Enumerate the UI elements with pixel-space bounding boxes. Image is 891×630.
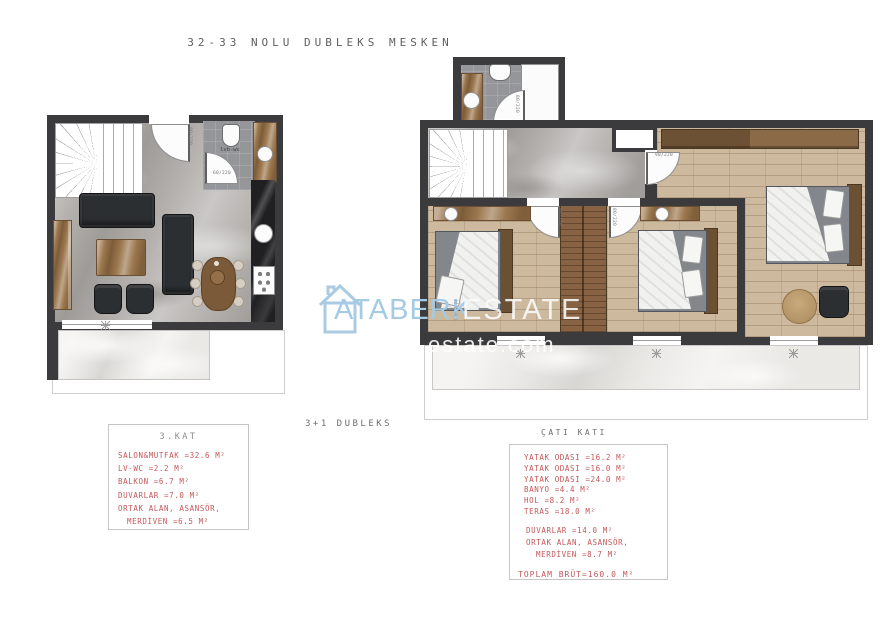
area-line: LV-WC =2.2 M² (118, 462, 248, 475)
bed-pillow (681, 269, 704, 298)
roof-info-box: YATAK ODASI =16.2 M² YATAK ODASI =16.0 M… (509, 444, 668, 580)
area-line: YATAK ODASI =16.2 M² (524, 453, 667, 464)
kitchen-sink-icon (254, 224, 273, 243)
sink-icon (257, 146, 273, 162)
bed-large (766, 184, 860, 264)
window-symbol (101, 321, 110, 330)
area-line: ORTAK ALAN, ASANSÖR, (118, 502, 248, 515)
area-line: YATAK ODASI =24.0 M² (524, 475, 667, 486)
area-line: TERAS =18.0 M² (524, 507, 667, 518)
armchair-left (94, 284, 122, 314)
table-decor-small (214, 261, 219, 266)
roof-divider-wall (737, 198, 745, 337)
roof-bedroom2-door-label: 80/220 (611, 208, 616, 226)
floor3-entry-door-label: 80/220 (187, 127, 192, 145)
stair-tread-lines (464, 130, 507, 197)
area-line: MERDİVEN =6.5 M² (127, 515, 248, 528)
window-symbol (516, 349, 525, 358)
house-logo-icon (316, 282, 364, 336)
area-line: BANYO =4.4 M² (524, 485, 667, 496)
area-line: YATAK ODASI =16.0 M² (524, 464, 667, 475)
floor3-balcony-floor (58, 330, 210, 380)
floor3-sideboard (53, 220, 72, 310)
coffee-table (96, 239, 146, 276)
roof-staircase (429, 129, 508, 198)
area-line: SALON&MUTFAK =32.6 M² (118, 449, 248, 462)
sofa-horizontal (79, 193, 155, 228)
roof-bedroom2-door-gap (608, 198, 640, 206)
vanity-stool (444, 207, 458, 221)
floor3-entry-gap (149, 113, 189, 124)
table-decor (210, 270, 225, 285)
stair-fan-lines (56, 124, 97, 197)
stair-tread-lines (94, 124, 142, 197)
roof-bath-door-label: 80/220 (514, 95, 519, 113)
floor3-wc-door-label: 60/220 (213, 171, 231, 176)
roof-window (633, 336, 681, 345)
floorplan-sheet: 32-33 NOLU DUBLEKS MESKEN 80/220 lvb-wc … (0, 0, 891, 630)
dining-chair (235, 278, 246, 289)
round-rug (782, 289, 817, 324)
bedroom-armchair (819, 286, 849, 318)
floor3-kitchen-counter (251, 180, 275, 322)
bed-pillow (823, 223, 845, 253)
total-area-line: TOPLAM BRÜT=160.0 M² (518, 570, 667, 579)
page-title: 32-33 NOLU DUBLEKS MESKEN (150, 36, 490, 49)
roof-bedroom1-door-label: 80/220 (557, 208, 562, 226)
area-line: HOL =8.2 M² (524, 496, 667, 507)
dining-chair (190, 278, 201, 289)
area-line: BALKON =6.7 M² (118, 475, 248, 488)
stove-icon (253, 266, 275, 295)
toilet-icon (222, 124, 240, 147)
roof-window (497, 336, 545, 345)
floor3-info-header: 3.KAT (109, 432, 248, 442)
bed-room1 (435, 229, 511, 311)
floor3-staircase (55, 123, 143, 198)
armchair-right (126, 284, 154, 314)
plan-type-label: 3+1 DUBLEKS (305, 419, 392, 429)
roof-niche (616, 130, 653, 148)
vanity-stool (655, 207, 669, 221)
stair-fan-lines (430, 130, 467, 197)
toilet-icon (489, 64, 511, 81)
bed-pillow (822, 189, 845, 219)
roof-bedroom1-door-gap (527, 198, 559, 206)
wardrobe-strip (661, 129, 859, 149)
floor3-left-wall-ext (47, 330, 58, 380)
sink-icon (463, 92, 480, 109)
window-symbol (789, 349, 798, 358)
bed-pillow (681, 235, 703, 264)
area-line: ORTAK ALAN, ASANSÖR, (526, 537, 667, 549)
area-line: DUVARLAR =7.0 M² (118, 489, 248, 502)
roof-window (770, 336, 818, 345)
vanity-counter (640, 206, 700, 221)
builtin-closet-strip (560, 206, 607, 332)
floor3-info-box: 3.KAT SALON&MUTFAK =32.6 M² LV-WC =2.2 M… (108, 424, 249, 530)
roof-bedroom3-door-label: 90/220 (655, 153, 673, 158)
window-symbol (652, 349, 661, 358)
area-line: DUVARLAR =14.0 M² (526, 525, 667, 537)
roof-floor-label: ÇATI KATI (541, 428, 607, 437)
area-line: MERDİVEN =8.7 M² (536, 549, 667, 561)
shower-area (521, 64, 559, 122)
bed-room2 (638, 228, 716, 312)
